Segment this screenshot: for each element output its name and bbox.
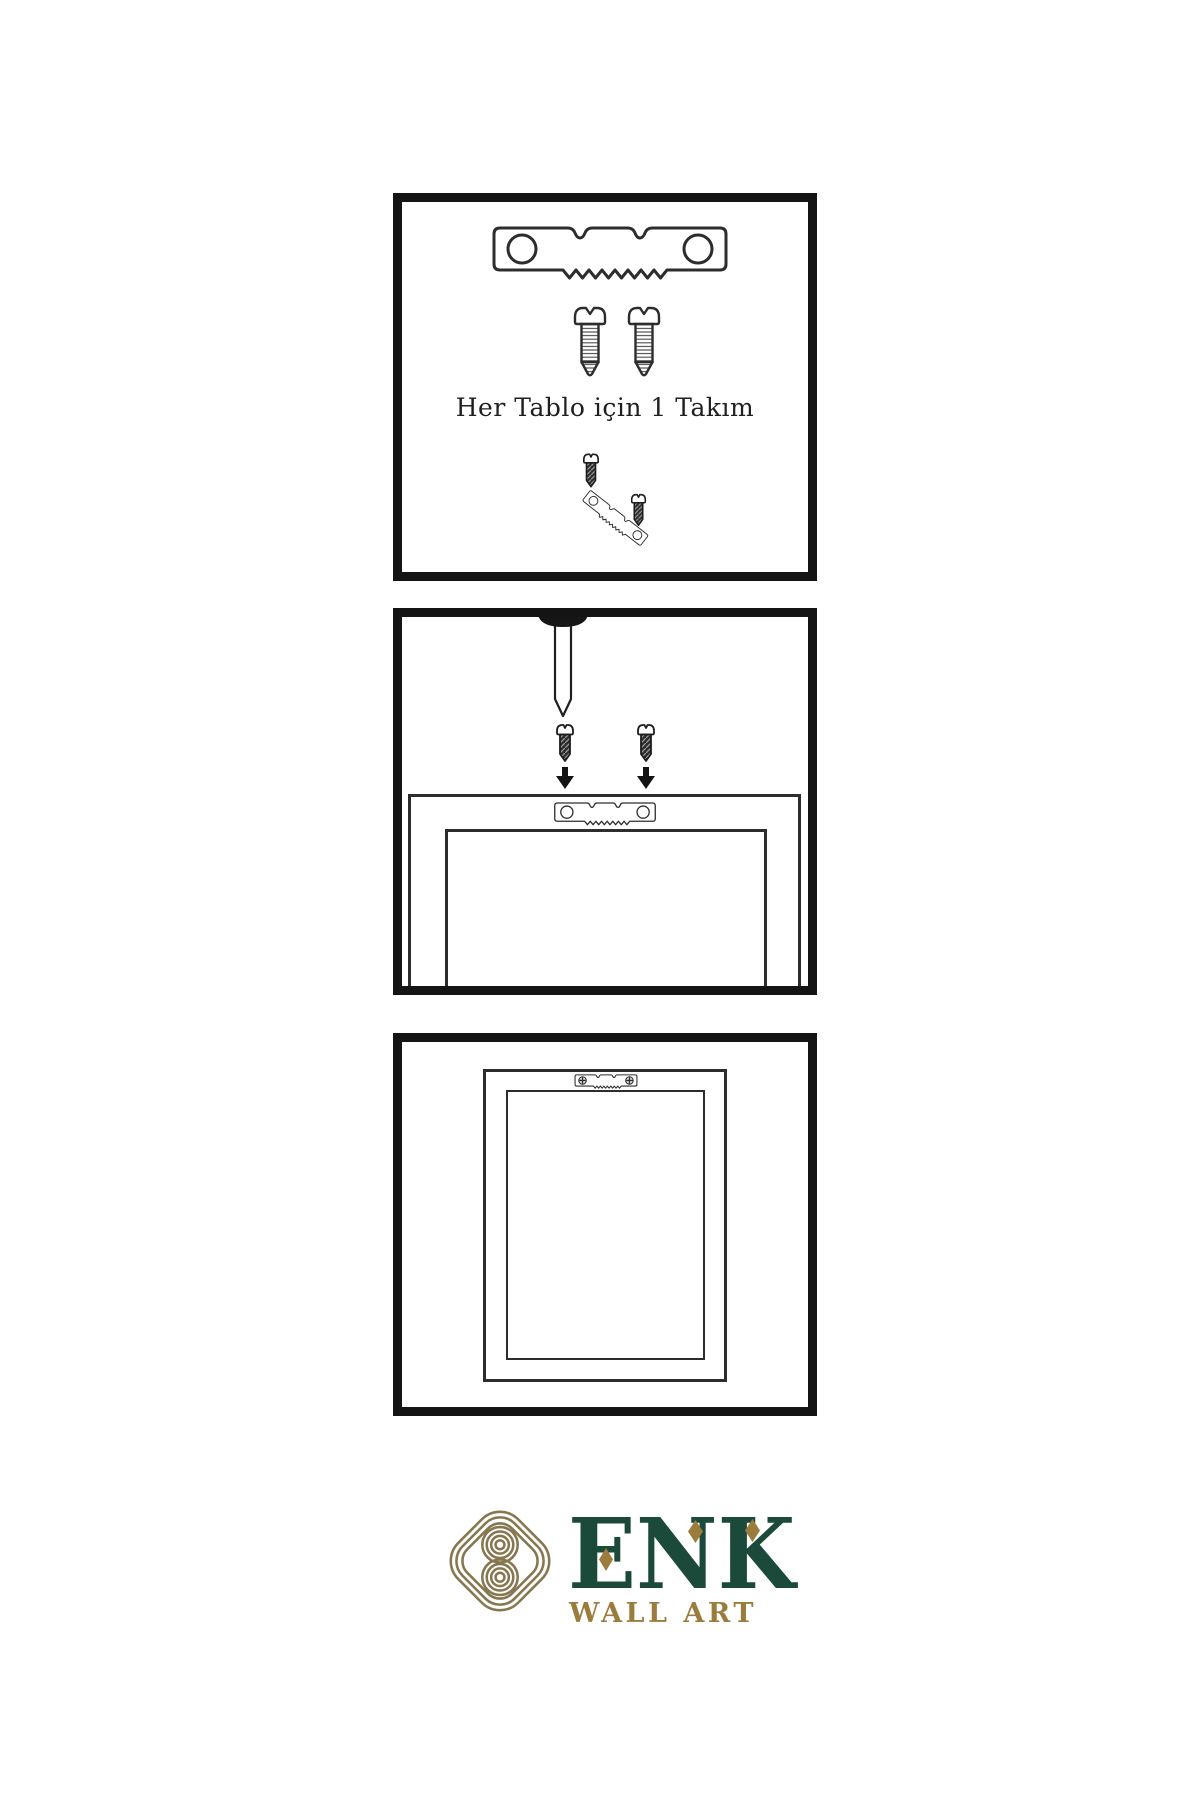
knot-logo-icon: [441, 1502, 559, 1620]
instruction-sheet: Her Tablo için 1 Takım ENK WALL ART: [0, 0, 1200, 1800]
screw-icon: [627, 305, 661, 377]
arrow-down-icon: [556, 767, 574, 789]
panel-hardware-kit: Her Tablo için 1 Takım: [393, 193, 817, 581]
sawtooth-hanger-icon: [553, 800, 657, 826]
kit-caption: Her Tablo için 1 Takım: [402, 392, 808, 424]
screw-dark-icon: [630, 493, 647, 527]
arrow-down-icon: [637, 767, 655, 789]
mounted-hanger-icon: [574, 1073, 638, 1089]
frame-inner-outline: [506, 1090, 705, 1360]
screw-dark-icon: [582, 452, 600, 489]
screw-icon: [573, 305, 607, 377]
panel-mounting-step: [393, 608, 817, 995]
sawtooth-hanger-icon: [490, 222, 730, 280]
frame-inner-outline: [445, 829, 767, 995]
screw-dark-icon: [555, 723, 575, 763]
screw-dark-icon: [636, 723, 656, 763]
panel-hung-frame: [393, 1033, 817, 1416]
nail-icon: [538, 615, 588, 719]
brand-subtitle: WALL ART: [569, 1599, 757, 1629]
